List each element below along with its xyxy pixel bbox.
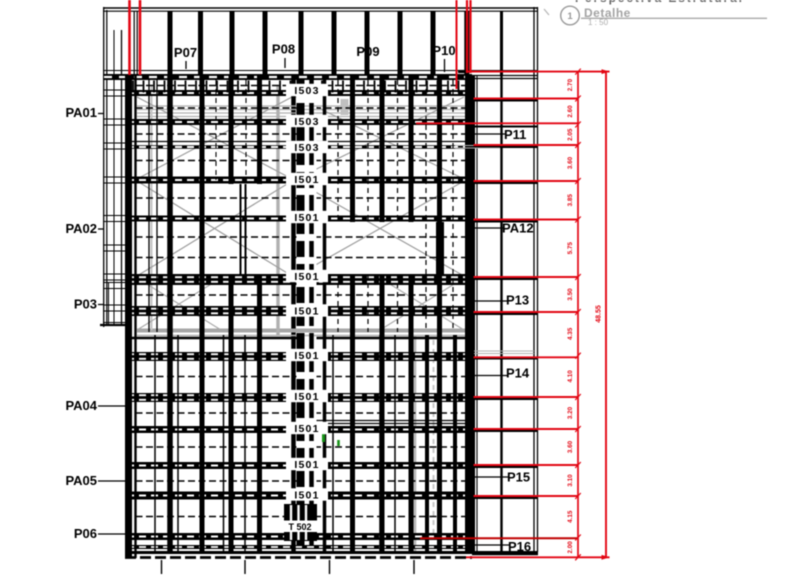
svg-text:I501: I501 (294, 489, 319, 501)
svg-text:5.75: 5.75 (567, 242, 574, 255)
svg-text:PA02: PA02 (65, 221, 97, 236)
svg-text:I501: I501 (294, 350, 319, 362)
svg-text:P03: P03 (74, 297, 97, 312)
svg-text:3.10: 3.10 (567, 474, 574, 487)
svg-text:2.05: 2.05 (567, 128, 574, 141)
svg-text:PA05: PA05 (65, 473, 97, 488)
svg-text:P06: P06 (74, 526, 97, 541)
svg-text:P14: P14 (506, 366, 530, 381)
svg-text:4.15: 4.15 (567, 510, 574, 523)
svg-text:P13: P13 (506, 293, 529, 308)
svg-text:PA01: PA01 (65, 105, 97, 120)
svg-text:I501: I501 (294, 212, 319, 224)
svg-text:PA12: PA12 (502, 221, 534, 236)
svg-text:3.85: 3.85 (567, 194, 574, 207)
svg-text:1: 1 (567, 11, 573, 22)
svg-text:I501: I501 (294, 423, 319, 435)
svg-text:3.60: 3.60 (567, 440, 574, 453)
svg-text:I501: I501 (294, 174, 319, 186)
svg-text:T 502: T 502 (288, 522, 311, 532)
svg-text:I501: I501 (294, 391, 319, 403)
svg-text:3.20: 3.20 (567, 406, 574, 419)
svg-text:P15: P15 (507, 470, 530, 485)
svg-text:P08: P08 (272, 42, 295, 57)
svg-text:I503: I503 (294, 142, 319, 154)
svg-text:1 : 50: 1 : 50 (588, 18, 609, 27)
svg-text:I501: I501 (294, 271, 319, 283)
svg-text:3.60: 3.60 (567, 156, 574, 169)
svg-text:P07: P07 (174, 45, 197, 60)
svg-text:3.50: 3.50 (567, 288, 574, 301)
svg-text:P16: P16 (508, 539, 531, 554)
svg-text:I501: I501 (294, 305, 319, 317)
svg-text:PA04: PA04 (65, 398, 97, 413)
svg-text:P10: P10 (432, 43, 455, 58)
svg-text:2.70: 2.70 (567, 78, 574, 91)
svg-text:2.60: 2.60 (567, 105, 574, 118)
svg-text:I503: I503 (294, 116, 319, 128)
svg-text:I501: I501 (294, 459, 319, 471)
svg-text:4.35: 4.35 (567, 327, 574, 340)
svg-text:4.10: 4.10 (567, 370, 574, 383)
svg-text:P09: P09 (356, 44, 379, 59)
svg-text:2.00: 2.00 (567, 541, 574, 554)
svg-text:I503: I503 (294, 85, 319, 97)
svg-text:P11: P11 (504, 127, 526, 142)
svg-text:48.55: 48.55 (596, 305, 603, 323)
svg-text:Perspectiva Estrutural: Perspectiva Estrutural (575, 0, 743, 5)
